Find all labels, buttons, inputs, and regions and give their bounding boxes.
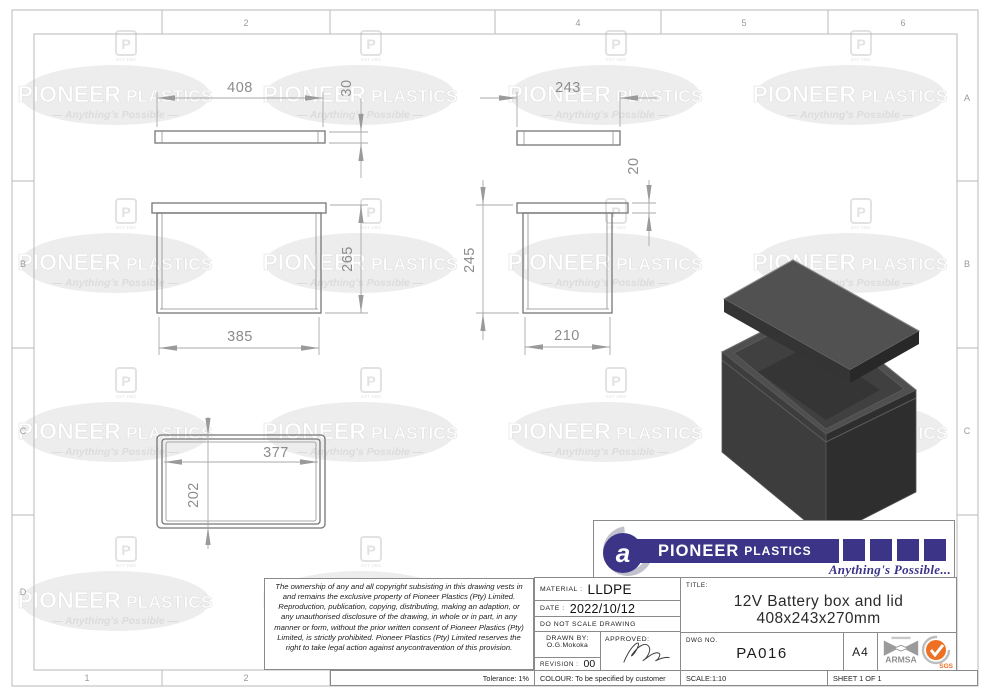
svg-text:EST 1982: EST 1982 <box>606 57 626 62</box>
svg-text:— Anything's Possible —: — Anything's Possible — <box>51 615 179 627</box>
grid-label: D <box>20 587 27 597</box>
svg-text:EST 1982: EST 1982 <box>116 394 136 399</box>
title-label: TITLE: <box>686 582 708 589</box>
svg-text:EST 1982: EST 1982 <box>606 225 626 230</box>
dim-box-side-height: 245 <box>462 247 478 273</box>
logo-box: a PIONEER PLASTICS Anything's Possible..… <box>593 520 955 578</box>
watermark-tile: PIONEERPLASTICS— Anything's Possible —PE… <box>752 31 947 125</box>
drawn-by-cell: DRAWN BY: O.G.Mokoka <box>534 631 601 658</box>
sheet-cell: SHEET 1 OF 1 <box>827 670 978 686</box>
svg-text:EST 1982: EST 1982 <box>361 394 381 399</box>
grid-label: A <box>964 93 970 103</box>
grid-label: 4 <box>575 18 580 28</box>
drawing-title-line2: 408x243x270mm <box>681 610 956 627</box>
drawn-by-value: O.G.Mokoka <box>535 642 600 649</box>
drawn-by-label: DRAWN BY: <box>535 635 600 642</box>
svg-text:— Anything's Possible —: — Anything's Possible — <box>541 446 669 458</box>
svg-text:— Anything's Possible —: — Anything's Possible — <box>296 446 424 458</box>
grid-label: B <box>20 259 26 269</box>
svg-text:P: P <box>366 36 375 52</box>
svg-text:EST 1982: EST 1982 <box>851 57 871 62</box>
grid-label: 2 <box>243 673 248 683</box>
grid-label: C <box>964 426 971 436</box>
svg-text:P: P <box>366 542 375 558</box>
tolerance-cell: Tolerance: 1% <box>330 670 535 686</box>
dim-lid-width: 408 <box>227 80 253 96</box>
logo-square <box>924 539 946 561</box>
dim-lid-height: 30 <box>339 79 355 96</box>
grid-label: C <box>20 426 27 436</box>
revision-label: REVISION : <box>540 661 579 668</box>
certifications-cell: ARMSA SGS <box>877 632 957 671</box>
date-value: 2022/10/12 <box>570 602 636 616</box>
grid-label: B <box>964 259 970 269</box>
dwg-no-value: PA016 <box>681 645 843 662</box>
watermark-tile: PIONEERPLASTICS— Anything's Possible —PE… <box>17 537 212 631</box>
material-label: MATERIAL : <box>540 586 583 593</box>
dwg-no-cell: DWG NO. PA016 <box>680 632 844 671</box>
logo-bar: PIONEER PLASTICS <box>631 539 839 563</box>
svg-text:P: P <box>366 204 375 220</box>
svg-text:P: P <box>611 373 620 389</box>
svg-text:— Anything's Possible —: — Anything's Possible — <box>541 277 669 289</box>
grid-label: 5 <box>741 18 746 28</box>
svg-text:P: P <box>611 36 620 52</box>
drawing-title-line1: 12V Battery box and lid <box>681 593 956 610</box>
svg-text:P: P <box>856 36 865 52</box>
revision-cell: REVISION : 00 <box>534 657 601 671</box>
scale-cell: SCALE:1:10 <box>680 670 828 686</box>
logo-brand1: PIONEER <box>658 542 739 561</box>
logo-square <box>843 539 865 561</box>
dim-box-front-width: 385 <box>227 329 253 345</box>
date-cell: DATE : 2022/10/12 <box>534 600 681 617</box>
dim-box-side-width: 210 <box>554 328 580 344</box>
drawing-sheet: PIONEERPLASTICS— Anything's Possible —PE… <box>0 0 990 700</box>
date-label: DATE : <box>540 605 565 612</box>
svg-text:P: P <box>856 204 865 220</box>
svg-text:— Anything's Possible —: — Anything's Possible — <box>51 277 179 289</box>
dim-lid-depth: 243 <box>555 80 581 96</box>
svg-text:EST 1982: EST 1982 <box>116 563 136 568</box>
svg-text:EST 1982: EST 1982 <box>361 57 381 62</box>
approved-cell: APPROVED: <box>600 631 681 671</box>
watermark-tile: PIONEERPLASTICS— Anything's Possible —PE… <box>507 31 702 125</box>
sgs-icon: SGS <box>920 635 954 670</box>
svg-text:— Anything's Possible —: — Anything's Possible — <box>51 109 179 121</box>
svg-text:EST 1982: EST 1982 <box>116 57 136 62</box>
watermark-tile: PIONEERPLASTICS— Anything's Possible —PE… <box>262 368 457 462</box>
svg-text:P: P <box>366 373 375 389</box>
svg-text:P: P <box>611 204 620 220</box>
signature-icon <box>619 635 679 671</box>
svg-text:— Anything's Possible —: — Anything's Possible — <box>541 109 669 121</box>
svg-text:P: P <box>121 373 130 389</box>
watermark-tile: PIONEERPLASTICS— Anything's Possible —PE… <box>262 31 457 125</box>
dwg-no-label: DWG NO. <box>686 637 718 644</box>
svg-text:— Anything's Possible —: — Anything's Possible — <box>786 109 914 121</box>
logo-brand2: PLASTICS <box>744 544 811 558</box>
isometric-view <box>722 260 919 538</box>
svg-text:EST 1982: EST 1982 <box>851 225 871 230</box>
watermark-tile: PIONEERPLASTICS— Anything's Possible —PE… <box>17 368 212 462</box>
dim-plan-width: 377 <box>263 445 289 461</box>
logo-square <box>870 539 892 561</box>
sgs-label: SGS <box>939 663 953 670</box>
grid-label: 2 <box>243 18 248 28</box>
svg-text:a: a <box>616 538 630 568</box>
material-value: LLDPE <box>588 582 632 597</box>
grid-label: 6 <box>900 18 905 28</box>
revision-value: 00 <box>584 658 596 670</box>
armsa-label: ARMSA <box>885 655 916 665</box>
svg-text:P: P <box>121 204 130 220</box>
svg-text:EST 1982: EST 1982 <box>361 563 381 568</box>
armsa-icon: ARMSA <box>880 635 922 669</box>
watermark-tile: PIONEERPLASTICS— Anything's Possible —PE… <box>17 31 212 125</box>
colour-cell: COLOUR: To be specified by customer <box>534 670 681 686</box>
no-scale-note: DO NOT SCALE DRAWING <box>540 621 636 628</box>
dim-lip-height: 20 <box>626 157 642 174</box>
material-cell: MATERIAL : LLDPE <box>534 577 681 601</box>
paper-size-cell: A4 <box>843 632 878 671</box>
copyright-notice: The ownership of any and all copyright s… <box>264 578 534 670</box>
no-scale-cell: DO NOT SCALE DRAWING <box>534 616 681 632</box>
watermark-tile: PIONEERPLASTICS— Anything's Possible —PE… <box>507 368 702 462</box>
svg-text:EST 1982: EST 1982 <box>361 225 381 230</box>
svg-text:P: P <box>121 542 130 558</box>
logo-tagline: Anything's Possible... <box>829 562 951 578</box>
svg-text:P: P <box>121 36 130 52</box>
dim-box-front-height: 265 <box>340 246 356 272</box>
grid-label: 1 <box>84 673 89 683</box>
svg-text:— Anything's Possible —: — Anything's Possible — <box>51 446 179 458</box>
logo-square <box>897 539 919 561</box>
svg-text:EST 1982: EST 1982 <box>606 394 626 399</box>
dim-plan-depth: 202 <box>186 482 202 508</box>
svg-text:EST 1982: EST 1982 <box>116 225 136 230</box>
title-cell: TITLE: 12V Battery box and lid 408x243x2… <box>680 577 957 633</box>
svg-text:— Anything's Possible —: — Anything's Possible — <box>296 277 424 289</box>
